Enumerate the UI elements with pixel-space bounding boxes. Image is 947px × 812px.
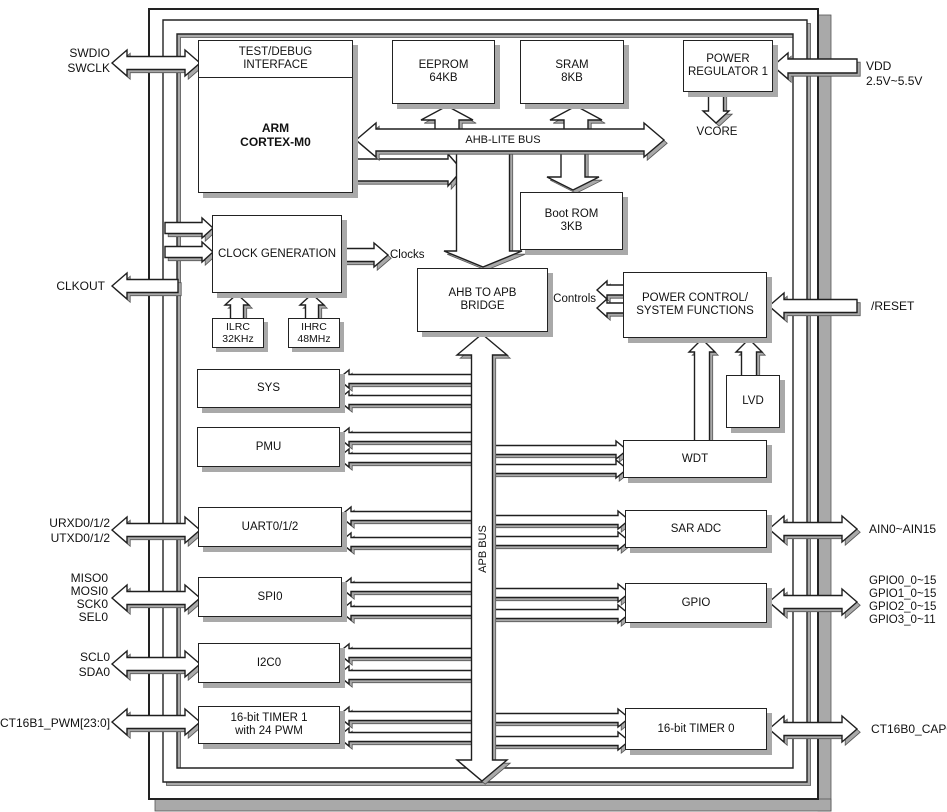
block-sram-label: SRAM 8KB	[555, 59, 588, 85]
block-arm-cortex-m0: ARM CORTEX-M0	[198, 77, 353, 193]
block-sar-adc: SAR ADC	[625, 510, 767, 548]
block-ihrc-label: IHRC 48MHz	[297, 321, 330, 345]
block-power-regulator: POWER REGULATOR 1	[683, 40, 773, 92]
pin-label-reset: /RESET	[871, 299, 941, 314]
block-sys-label: SYS	[257, 382, 280, 395]
pin-label-spi-pins: MISO0 MOSI0 SCK0 SEL0	[30, 572, 108, 624]
block-timer0: 16-bit TIMER 0	[625, 708, 767, 750]
block-timer0-label: 16-bit TIMER 0	[657, 723, 734, 736]
wiring-layer	[0, 0, 947, 812]
pin-label-ct16b1-pwm: CT16B1_PWM[23:0]	[0, 716, 108, 731]
block-boot-rom: Boot ROM 3KB	[520, 192, 623, 250]
pin-label-vdd: VDD 2.5V~5.5V	[866, 59, 946, 89]
block-ahb-apb-bridge: AHB TO APB BRIDGE	[417, 268, 548, 332]
clocks-net-label: Clocks	[390, 249, 440, 261]
pin-label-gpio-ports: GPIO0_0~15 GPIO1_0~15 GPIO2_0~15 GPIO3_0…	[869, 575, 944, 627]
block-gpio: GPIO	[625, 583, 767, 623]
block-sar-adc-label: SAR ADC	[671, 523, 722, 536]
block-ihrc: IHRC 48MHz	[288, 318, 340, 348]
block-clock-generation-label: CLOCK GENERATION	[218, 248, 336, 261]
pin-label-ain: AIN0~AIN15	[869, 522, 944, 537]
block-eeprom-label: EEPROM 64KB	[419, 59, 469, 85]
block-eeprom: EEPROM 64KB	[392, 40, 495, 104]
chip-border-shadow-bottom	[155, 799, 831, 811]
block-uart: UART0/1/2	[198, 507, 342, 547]
block-spi: SPI0	[198, 577, 342, 617]
block-timer1-label: 16-bit TIMER 1 with 24 PWM	[230, 712, 307, 738]
block-pmu-label: PMU	[256, 441, 282, 454]
block-pmu: PMU	[197, 427, 340, 467]
pin-label-ct16b0-cap0: CT16B0_CAP0	[871, 722, 947, 737]
lane-arm-ahb-out	[353, 154, 465, 189]
pin-label-urxd-utxd: URXD0/1/2 UTXD0/1/2	[30, 516, 110, 546]
block-test-debug-label: TEST/DEBUG INTERFACE	[239, 46, 312, 72]
block-wdt-label: WDT	[682, 453, 708, 466]
block-clock-generation: CLOCK GENERATION	[212, 215, 342, 293]
block-lvd: LVD	[726, 375, 780, 428]
controls-net-label: Controls	[548, 293, 596, 305]
block-wdt: WDT	[623, 440, 767, 478]
block-power-control-label: POWER CONTROL/ SYSTEM FUNCTIONS	[636, 292, 754, 318]
block-diagram: TEST/DEBUG INTERFACE ARM CORTEX-M0 EEPRO…	[0, 0, 947, 812]
pin-label-scl-sda: SCL0 SDA0	[30, 650, 110, 680]
block-ilrc: ILRC 32KHz	[212, 318, 264, 348]
pin-label-swdio-swclk: SWDIO SWCLK	[30, 46, 110, 76]
block-uart-label: UART0/1/2	[242, 521, 299, 534]
lane-ahb-vertical	[444, 150, 525, 270]
block-arm-label: ARM CORTEX-M0	[240, 121, 311, 149]
vcore-net-label: VCORE	[691, 126, 743, 138]
block-test-debug-interface: TEST/DEBUG INTERFACE	[198, 40, 353, 78]
block-sram: SRAM 8KB	[520, 40, 624, 104]
block-sys: SYS	[197, 369, 340, 408]
block-i2c-label: I2C0	[257, 657, 281, 670]
block-i2c: I2C0	[198, 643, 340, 683]
block-gpio-label: GPIO	[682, 597, 711, 610]
block-boot-rom-label: Boot ROM 3KB	[545, 208, 599, 234]
block-lvd-label: LVD	[742, 395, 764, 408]
block-spi-label: SPI0	[258, 591, 283, 604]
block-ilrc-label: ILRC 32KHz	[222, 321, 254, 345]
ahb-lite-bus-label: AHB-LITE BUS	[448, 134, 558, 146]
block-power-regulator-label: POWER REGULATOR 1	[688, 53, 768, 79]
chip-border-shadow-right	[818, 15, 831, 811]
block-timer1: 16-bit TIMER 1 with 24 PWM	[198, 706, 340, 744]
apb-bus-label: APB BUS	[477, 505, 491, 593]
pin-label-clkout: CLKOUT	[25, 279, 105, 294]
block-bridge-label: AHB TO APB BRIDGE	[449, 287, 517, 313]
block-power-control: POWER CONTROL/ SYSTEM FUNCTIONS	[623, 272, 767, 338]
